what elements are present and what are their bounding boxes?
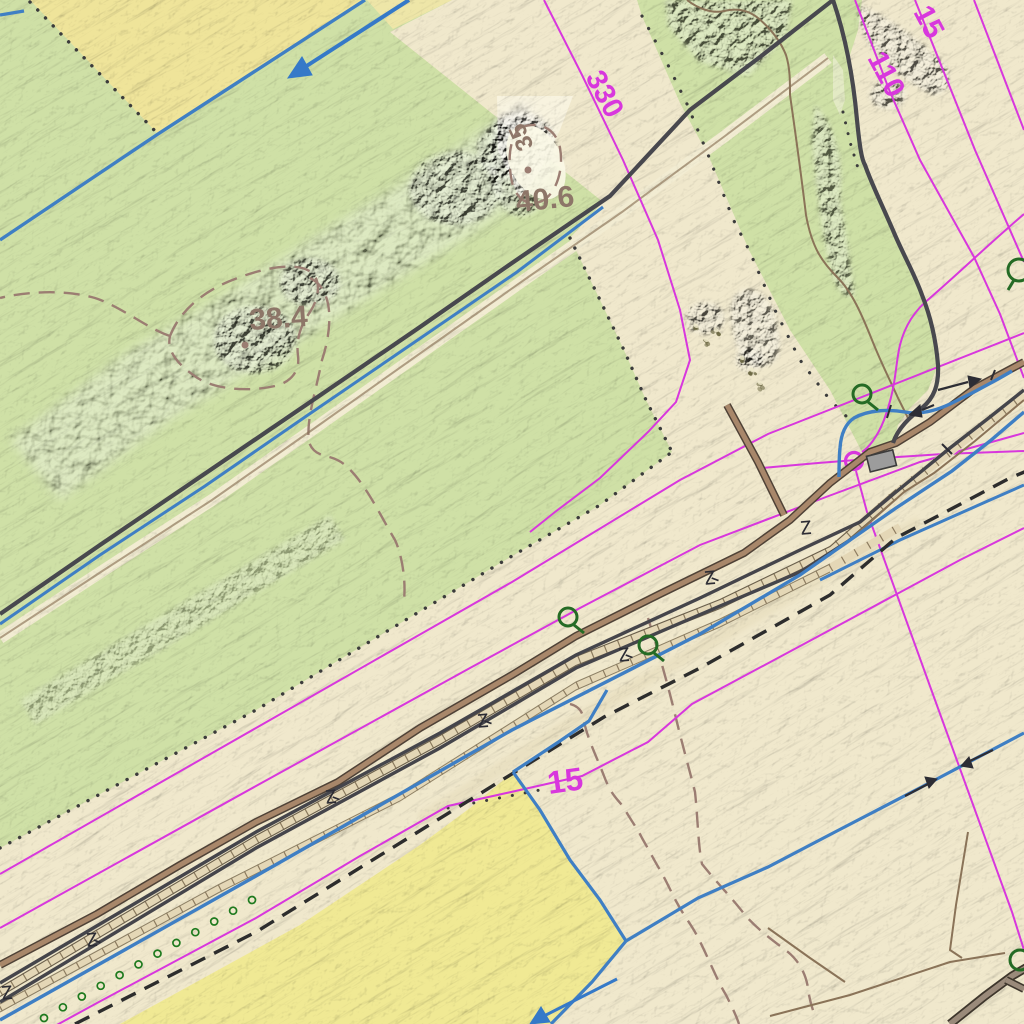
svg-text:40.6: 40.6 bbox=[514, 180, 576, 219]
svg-text:15: 15 bbox=[545, 760, 585, 801]
svg-text:38.4: 38.4 bbox=[248, 300, 309, 337]
